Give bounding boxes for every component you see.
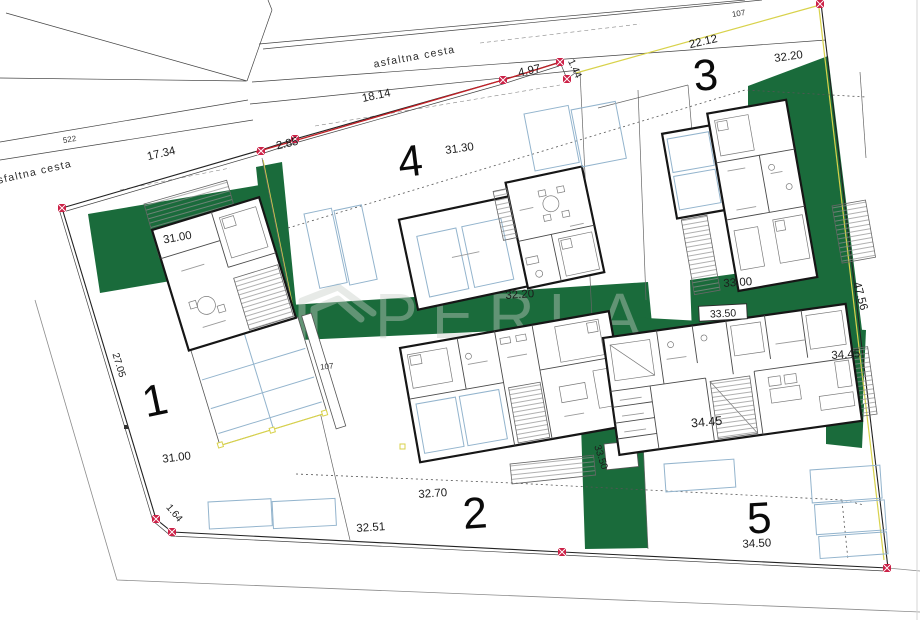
parcel-ref-107-mid: 107 (320, 361, 335, 371)
dim-32-20-c: 32.20 (505, 288, 535, 302)
dim-32-70: 32.70 (418, 487, 448, 501)
plot-number-3: 3 (691, 50, 720, 101)
site-plan-drawing: PERLA NEKRETNINE (0, 0, 920, 620)
dim-33-00: 33.00 (723, 276, 753, 290)
dim-34-45-in: 34.45 (690, 414, 722, 431)
dim-34-45-e: 34.45 (831, 348, 861, 362)
plot-number-2: 2 (461, 488, 489, 539)
site-plan-page: PERLA NEKRETNINE (0, 0, 920, 620)
corner-mark (400, 444, 405, 449)
svg-text:33.50: 33.50 (710, 307, 737, 320)
dim-33-50-box: 33.50 (699, 304, 748, 321)
plot-number-5: 5 (746, 493, 773, 543)
dim-32-51: 32.51 (356, 521, 386, 535)
